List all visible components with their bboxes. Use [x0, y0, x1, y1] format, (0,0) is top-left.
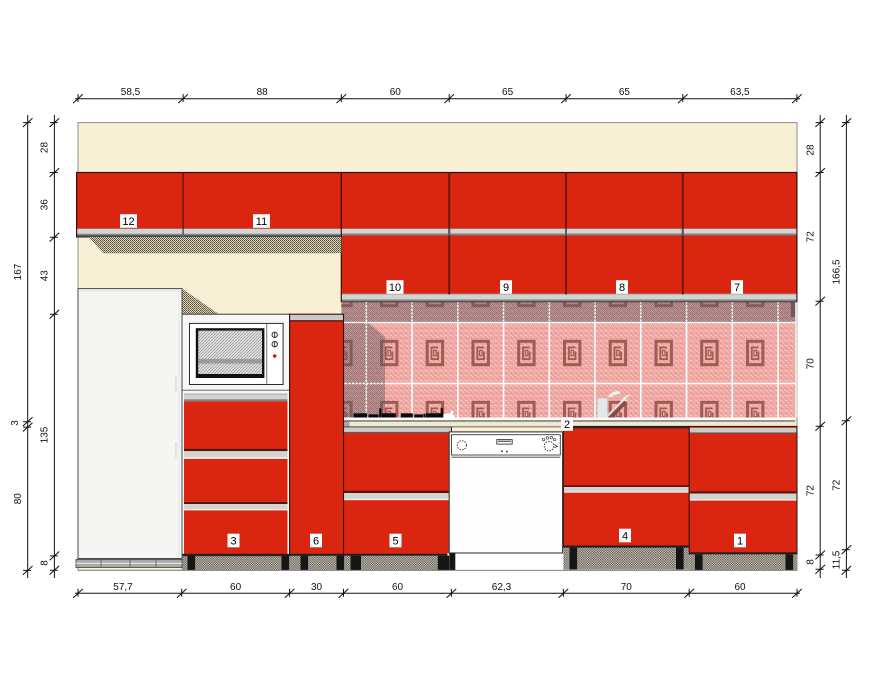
svg-text:6: 6: [313, 535, 319, 547]
svg-text:57,7: 57,7: [113, 582, 133, 593]
svg-text:60: 60: [392, 582, 404, 593]
svg-text:11: 11: [256, 216, 267, 228]
svg-text:36: 36: [40, 199, 51, 211]
svg-text:72: 72: [806, 485, 817, 497]
svg-text:88: 88: [257, 87, 269, 98]
svg-text:10: 10: [389, 282, 401, 294]
svg-text:63,5: 63,5: [730, 87, 750, 98]
svg-text:43: 43: [40, 270, 51, 282]
svg-text:72: 72: [832, 479, 843, 491]
svg-text:60: 60: [390, 87, 402, 98]
svg-text:3: 3: [230, 535, 236, 547]
svg-text:166,5: 166,5: [832, 259, 843, 284]
svg-text:7: 7: [734, 282, 740, 294]
svg-text:60: 60: [734, 582, 746, 593]
svg-text:12: 12: [122, 216, 134, 228]
svg-text:58,5: 58,5: [121, 87, 141, 98]
svg-text:5: 5: [392, 535, 398, 547]
svg-text:11,5: 11,5: [832, 550, 843, 569]
svg-text:72: 72: [806, 231, 817, 243]
svg-text:2: 2: [564, 419, 570, 431]
svg-text:28: 28: [806, 144, 817, 156]
svg-text:70: 70: [621, 582, 633, 593]
svg-text:30: 30: [311, 582, 323, 593]
svg-text:65: 65: [502, 87, 514, 98]
svg-text:60: 60: [230, 582, 242, 593]
svg-text:62,3: 62,3: [492, 582, 512, 593]
svg-text:3: 3: [10, 420, 21, 426]
svg-text:8: 8: [806, 559, 817, 565]
svg-text:4: 4: [622, 530, 628, 542]
svg-text:9: 9: [503, 282, 509, 294]
svg-text:167: 167: [13, 263, 24, 280]
svg-text:8: 8: [40, 560, 51, 566]
svg-text:65: 65: [619, 87, 631, 98]
svg-text:1: 1: [737, 535, 743, 547]
svg-text:135: 135: [40, 426, 51, 443]
svg-text:8: 8: [619, 282, 625, 294]
svg-text:80: 80: [13, 493, 24, 505]
svg-text:70: 70: [806, 358, 817, 370]
svg-text:28: 28: [40, 142, 51, 154]
